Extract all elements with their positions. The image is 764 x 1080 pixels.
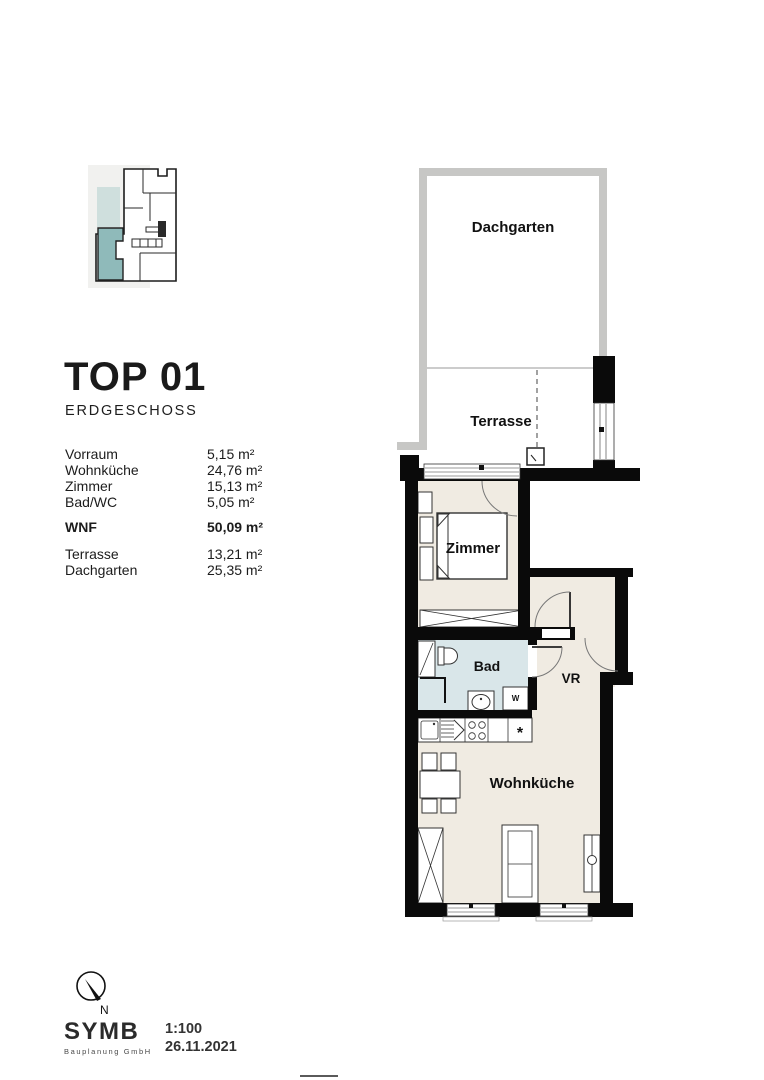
floor-label: ERDGESCHOSS [65, 403, 198, 419]
radiator [584, 835, 600, 892]
entrance-threshold [542, 629, 570, 638]
room-label-zimmer: Zimmer [446, 540, 500, 557]
key-plan-terrace-area [97, 187, 120, 227]
area-value: 13,21 m² [207, 546, 262, 562]
area-total-value: 50,09 m² [207, 519, 263, 535]
entrance-floor [530, 577, 615, 629]
company-logo-subtitle: Bauplanung GmbH [64, 1047, 152, 1056]
shelf [418, 492, 432, 513]
area-row: Terrasse 13,21 m² [65, 546, 295, 562]
terrace-french-door-window [424, 464, 520, 479]
plan-date: 26.11.2021 [165, 1039, 237, 1055]
kitchen-counter [418, 718, 532, 742]
area-row: Dachgarten 25,35 m² [65, 562, 295, 578]
page-edge-mark [300, 1075, 338, 1077]
plan-scale: 1:100 [165, 1021, 202, 1037]
north-arrow-icon: N [56, 950, 126, 1020]
tall-cabinet [418, 828, 443, 903]
area-row: Vorraum 5,15 m² [65, 446, 295, 462]
area-value: 25,35 m² [207, 562, 262, 578]
wardrobe [420, 610, 523, 627]
terrace-side-window [594, 403, 614, 460]
area-total-row: WNF 50,09 m² [65, 519, 295, 535]
area-value: 5,15 m² [207, 446, 254, 462]
area-value: 5,05 m² [207, 494, 254, 510]
floor-plan: Dachgarten Terrasse Zimmer Bad VR Wohnkü… [395, 155, 655, 925]
area-label: Zimmer [65, 478, 112, 494]
area-label: Terrasse [65, 546, 119, 562]
shower [418, 641, 435, 677]
page-title: TOP 01 [64, 357, 206, 397]
key-plan-elevator [158, 221, 166, 237]
room-label-bad: Bad [474, 658, 500, 674]
key-plan [88, 163, 183, 288]
area-label: Bad/WC [65, 494, 117, 510]
dachgarten-walls [397, 168, 607, 450]
terrace-drain [527, 448, 544, 465]
page: TOP 01 ERDGESCHOSS Vorraum 5,15 m² Wohnk… [0, 0, 764, 1080]
room-label-wohnkueche: Wohnküche [490, 775, 575, 792]
toilet [438, 647, 458, 665]
washer-label: W [512, 694, 520, 703]
nightstand [420, 517, 433, 580]
north-label: N [100, 1003, 109, 1017]
room-label-terrasse: Terrasse [470, 413, 531, 430]
room-label-vr: VR [562, 671, 581, 686]
fridge-asterisk: * [517, 725, 524, 742]
sofa [502, 825, 538, 903]
area-row: Bad/WC 5,05 m² [65, 494, 295, 510]
room-label-dachgarten: Dachgarten [472, 219, 555, 236]
wohnkueche-window [443, 904, 499, 921]
area-value: 24,76 m² [207, 462, 262, 478]
area-label: Dachgarten [65, 562, 137, 578]
area-label: Wohnküche [65, 462, 139, 478]
wohnkueche-window [536, 904, 592, 921]
company-logo: SYMB [64, 1020, 139, 1044]
area-row: Zimmer 15,13 m² [65, 478, 295, 494]
area-row: Wohnküche 24,76 m² [65, 462, 295, 478]
bad-door-opening [528, 645, 537, 677]
area-label: Vorraum [65, 446, 118, 462]
area-total-label: WNF [65, 519, 97, 535]
area-value: 15,13 m² [207, 478, 262, 494]
